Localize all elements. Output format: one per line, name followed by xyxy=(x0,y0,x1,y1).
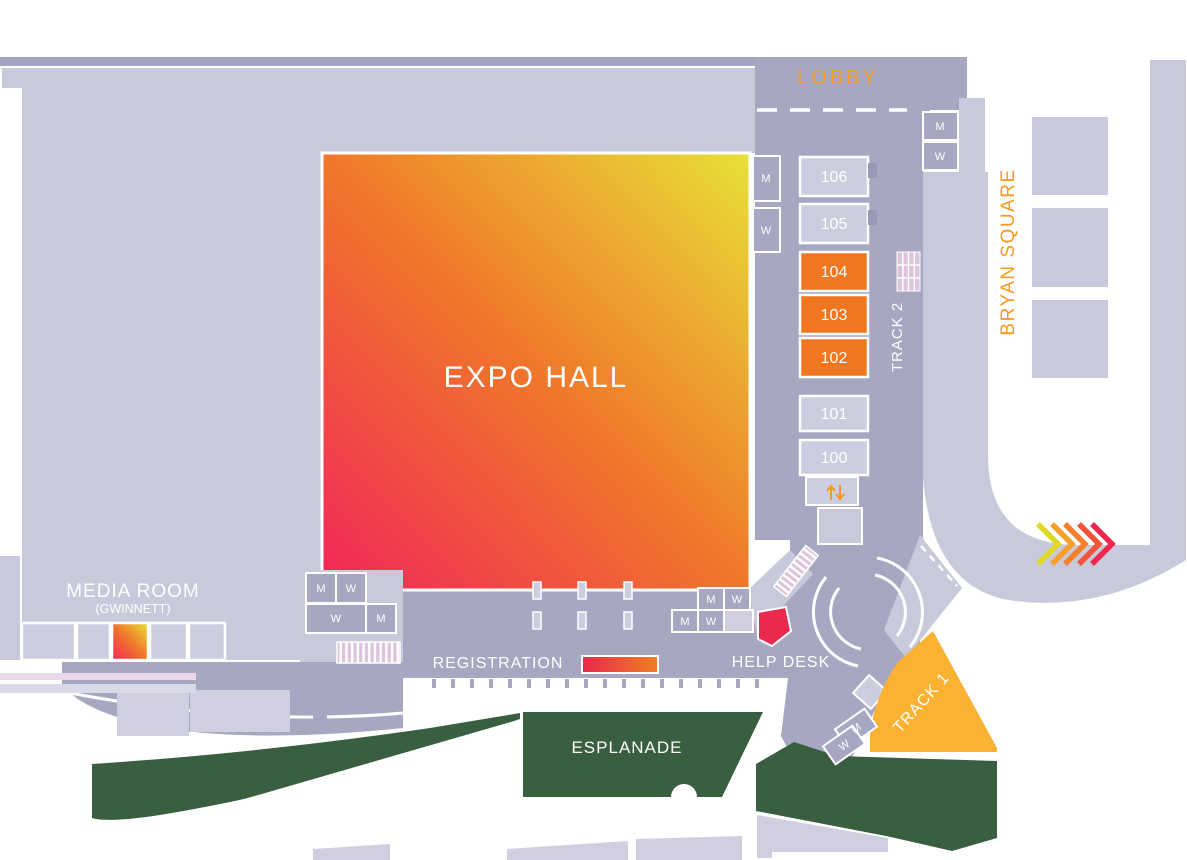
room-100-label: 100 xyxy=(821,450,848,467)
bryan-square-block-2 xyxy=(1032,208,1108,287)
west-building-block xyxy=(22,68,322,660)
restroom-men-label: M xyxy=(761,173,770,185)
storage-box-se xyxy=(724,610,753,632)
restroom-men-label: M xyxy=(680,616,689,628)
room-door-tab-1 xyxy=(868,163,877,178)
restroom-women-label: W xyxy=(761,225,772,237)
lobby-label: LOBBY xyxy=(797,67,879,89)
media-room-sublabel: (GWINNETT) xyxy=(96,602,171,616)
media-row-room-1 xyxy=(22,623,75,660)
road-left-leg-upper xyxy=(959,98,985,174)
room-104-label: 104 xyxy=(821,264,848,281)
room-105-label: 105 xyxy=(821,216,848,233)
expo-hall-label: EXPO HALL xyxy=(444,361,629,394)
bryan-square-block-3 xyxy=(1032,300,1108,378)
room-106-label: 106 xyxy=(821,169,848,186)
escalator-hatch-track2 xyxy=(897,252,920,291)
south-light-wedge-1 xyxy=(117,692,189,736)
media-row-room-4 xyxy=(189,623,225,660)
restroom-men-label: M xyxy=(706,594,715,606)
bryan-square-block-1 xyxy=(1032,117,1108,195)
curb-south-3 xyxy=(313,844,390,860)
west-hatch-strip-2 xyxy=(0,684,196,693)
curb-south-2 xyxy=(636,836,742,860)
service-box xyxy=(818,508,862,544)
south-light-wedge-2 xyxy=(190,690,290,732)
registration-label: REGISTRATION xyxy=(433,655,564,672)
restroom-women-label: W xyxy=(706,616,717,628)
track2-label: TRACK 2 xyxy=(889,302,906,372)
west-hatch-strip-1 xyxy=(0,673,196,680)
walkway-door-ticks xyxy=(432,679,759,688)
media-row-room-3 xyxy=(150,623,187,660)
registration-bar xyxy=(582,656,658,673)
venue-floorplan: 106 105 104 103 102 101 100 M W M W M xyxy=(0,0,1187,860)
north-building-band xyxy=(322,68,755,153)
south-walkway-tab xyxy=(313,715,327,727)
room-101-label: 101 xyxy=(821,406,848,423)
media-row-room-2 xyxy=(77,623,110,660)
curb-south-1 xyxy=(507,841,628,860)
restroom-men-label: M xyxy=(935,121,944,133)
restroom-women-label: W xyxy=(732,594,743,606)
road-left-leg xyxy=(923,172,988,442)
room-door-tab-2 xyxy=(868,210,877,225)
west-notch-block xyxy=(2,68,22,88)
stairs-hatch-registration xyxy=(337,642,400,663)
room-103-label: 103 xyxy=(821,307,848,324)
media-room-label: MEDIA ROOM xyxy=(66,581,200,602)
restroom-women-label: W xyxy=(331,613,342,625)
bryan-square-label: BRYAN SQUARE xyxy=(998,168,1019,335)
media-room-region xyxy=(112,623,148,660)
restroom-men-label: M xyxy=(376,613,385,625)
restroom-women-label: W xyxy=(346,583,357,595)
esplanade-label: ESPLANADE xyxy=(571,738,682,757)
room-102-label: 102 xyxy=(821,350,848,367)
help-desk-label: HELP DESK xyxy=(732,654,831,671)
restroom-women-label: W xyxy=(935,151,946,163)
west-edge-strip xyxy=(0,556,20,660)
restroom-men-label: M xyxy=(316,583,325,595)
